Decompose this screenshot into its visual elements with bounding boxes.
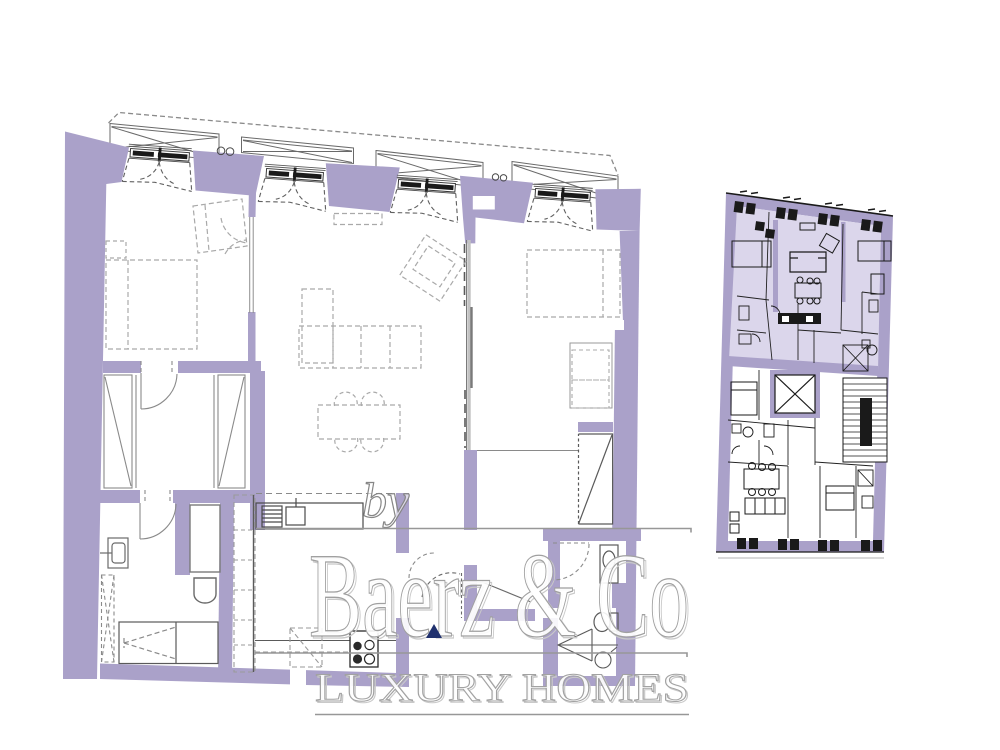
svg-text:LUXURY HOMES: LUXURY HOMES <box>315 665 689 710</box>
svg-text:by: by <box>362 472 410 528</box>
svg-text:Baerz & Co: Baerz & Co <box>309 529 689 663</box>
